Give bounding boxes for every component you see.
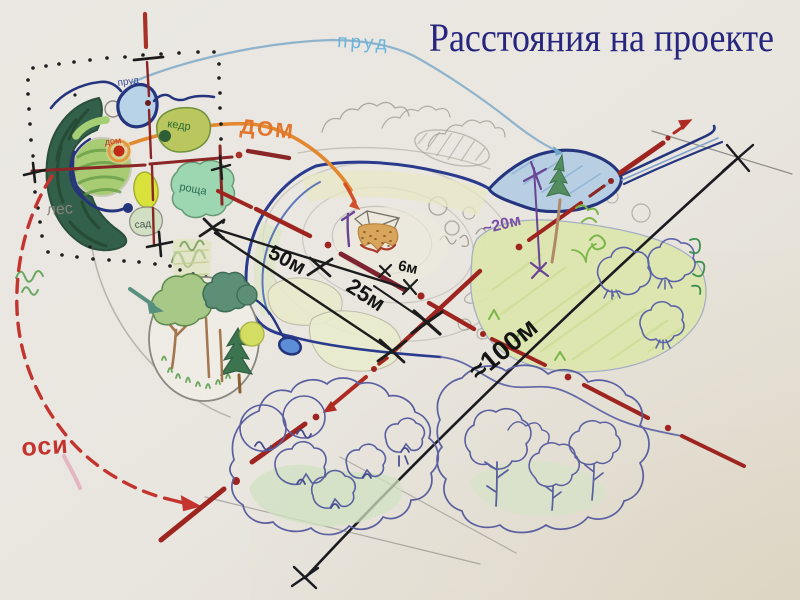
svg-text:лес: лес (46, 200, 73, 219)
svg-text:пруд: пруд (337, 31, 391, 55)
svg-text:Расстояния на проекте: Расстояния на проекте (429, 15, 774, 60)
svg-text:сад: сад (134, 219, 151, 231)
svg-text:дом: дом (104, 135, 121, 147)
svg-text:оси: оси (20, 431, 69, 462)
